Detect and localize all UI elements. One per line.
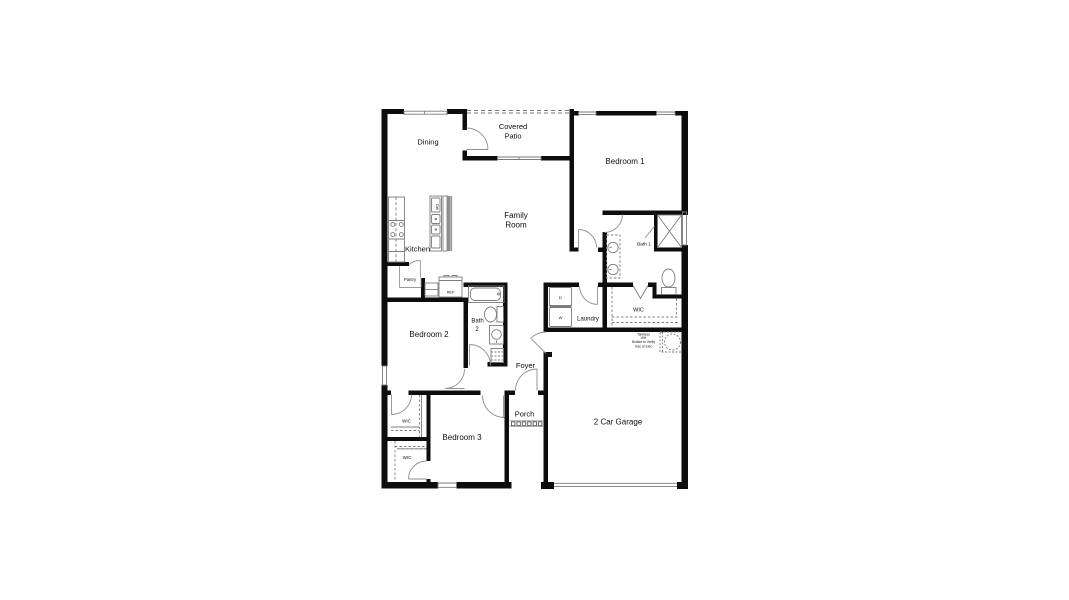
svg-text:Laundry: Laundry [577, 317, 599, 323]
svg-text:Bedroom 3: Bedroom 3 [442, 433, 482, 442]
svg-text:Patio: Patio [504, 132, 521, 141]
svg-text:Covered: Covered [499, 122, 527, 131]
svg-text:WIC: WIC [402, 419, 411, 424]
svg-text:Foyer: Foyer [516, 361, 536, 370]
svg-text:Porch: Porch [515, 410, 535, 419]
svg-text:W: W [559, 315, 563, 320]
svg-text:WIC: WIC [633, 308, 644, 314]
svg-text:WIC: WIC [403, 455, 412, 460]
svg-text:Builder to Verify: Builder to Verify [632, 340, 655, 344]
svg-text:Bedroom 2: Bedroom 2 [409, 330, 449, 339]
svg-text:Bath 1: Bath 1 [637, 242, 651, 248]
svg-text:REF: REF [447, 291, 455, 295]
svg-text:Family: Family [504, 211, 528, 220]
svg-text:D: D [559, 295, 562, 300]
svg-text:2 Car Garage: 2 Car Garage [594, 418, 643, 427]
svg-text:Room: Room [505, 221, 527, 230]
svg-text:Dining: Dining [417, 138, 438, 147]
svg-text:Pantry: Pantry [404, 277, 417, 282]
svg-text:Kitchen: Kitchen [405, 245, 430, 254]
svg-text:Gas or Elec: Gas or Elec [635, 345, 653, 349]
svg-text:Bath: Bath [471, 319, 483, 325]
svg-text:DW: DW [435, 204, 439, 211]
svg-text:Bedroom 1: Bedroom 1 [605, 157, 645, 166]
